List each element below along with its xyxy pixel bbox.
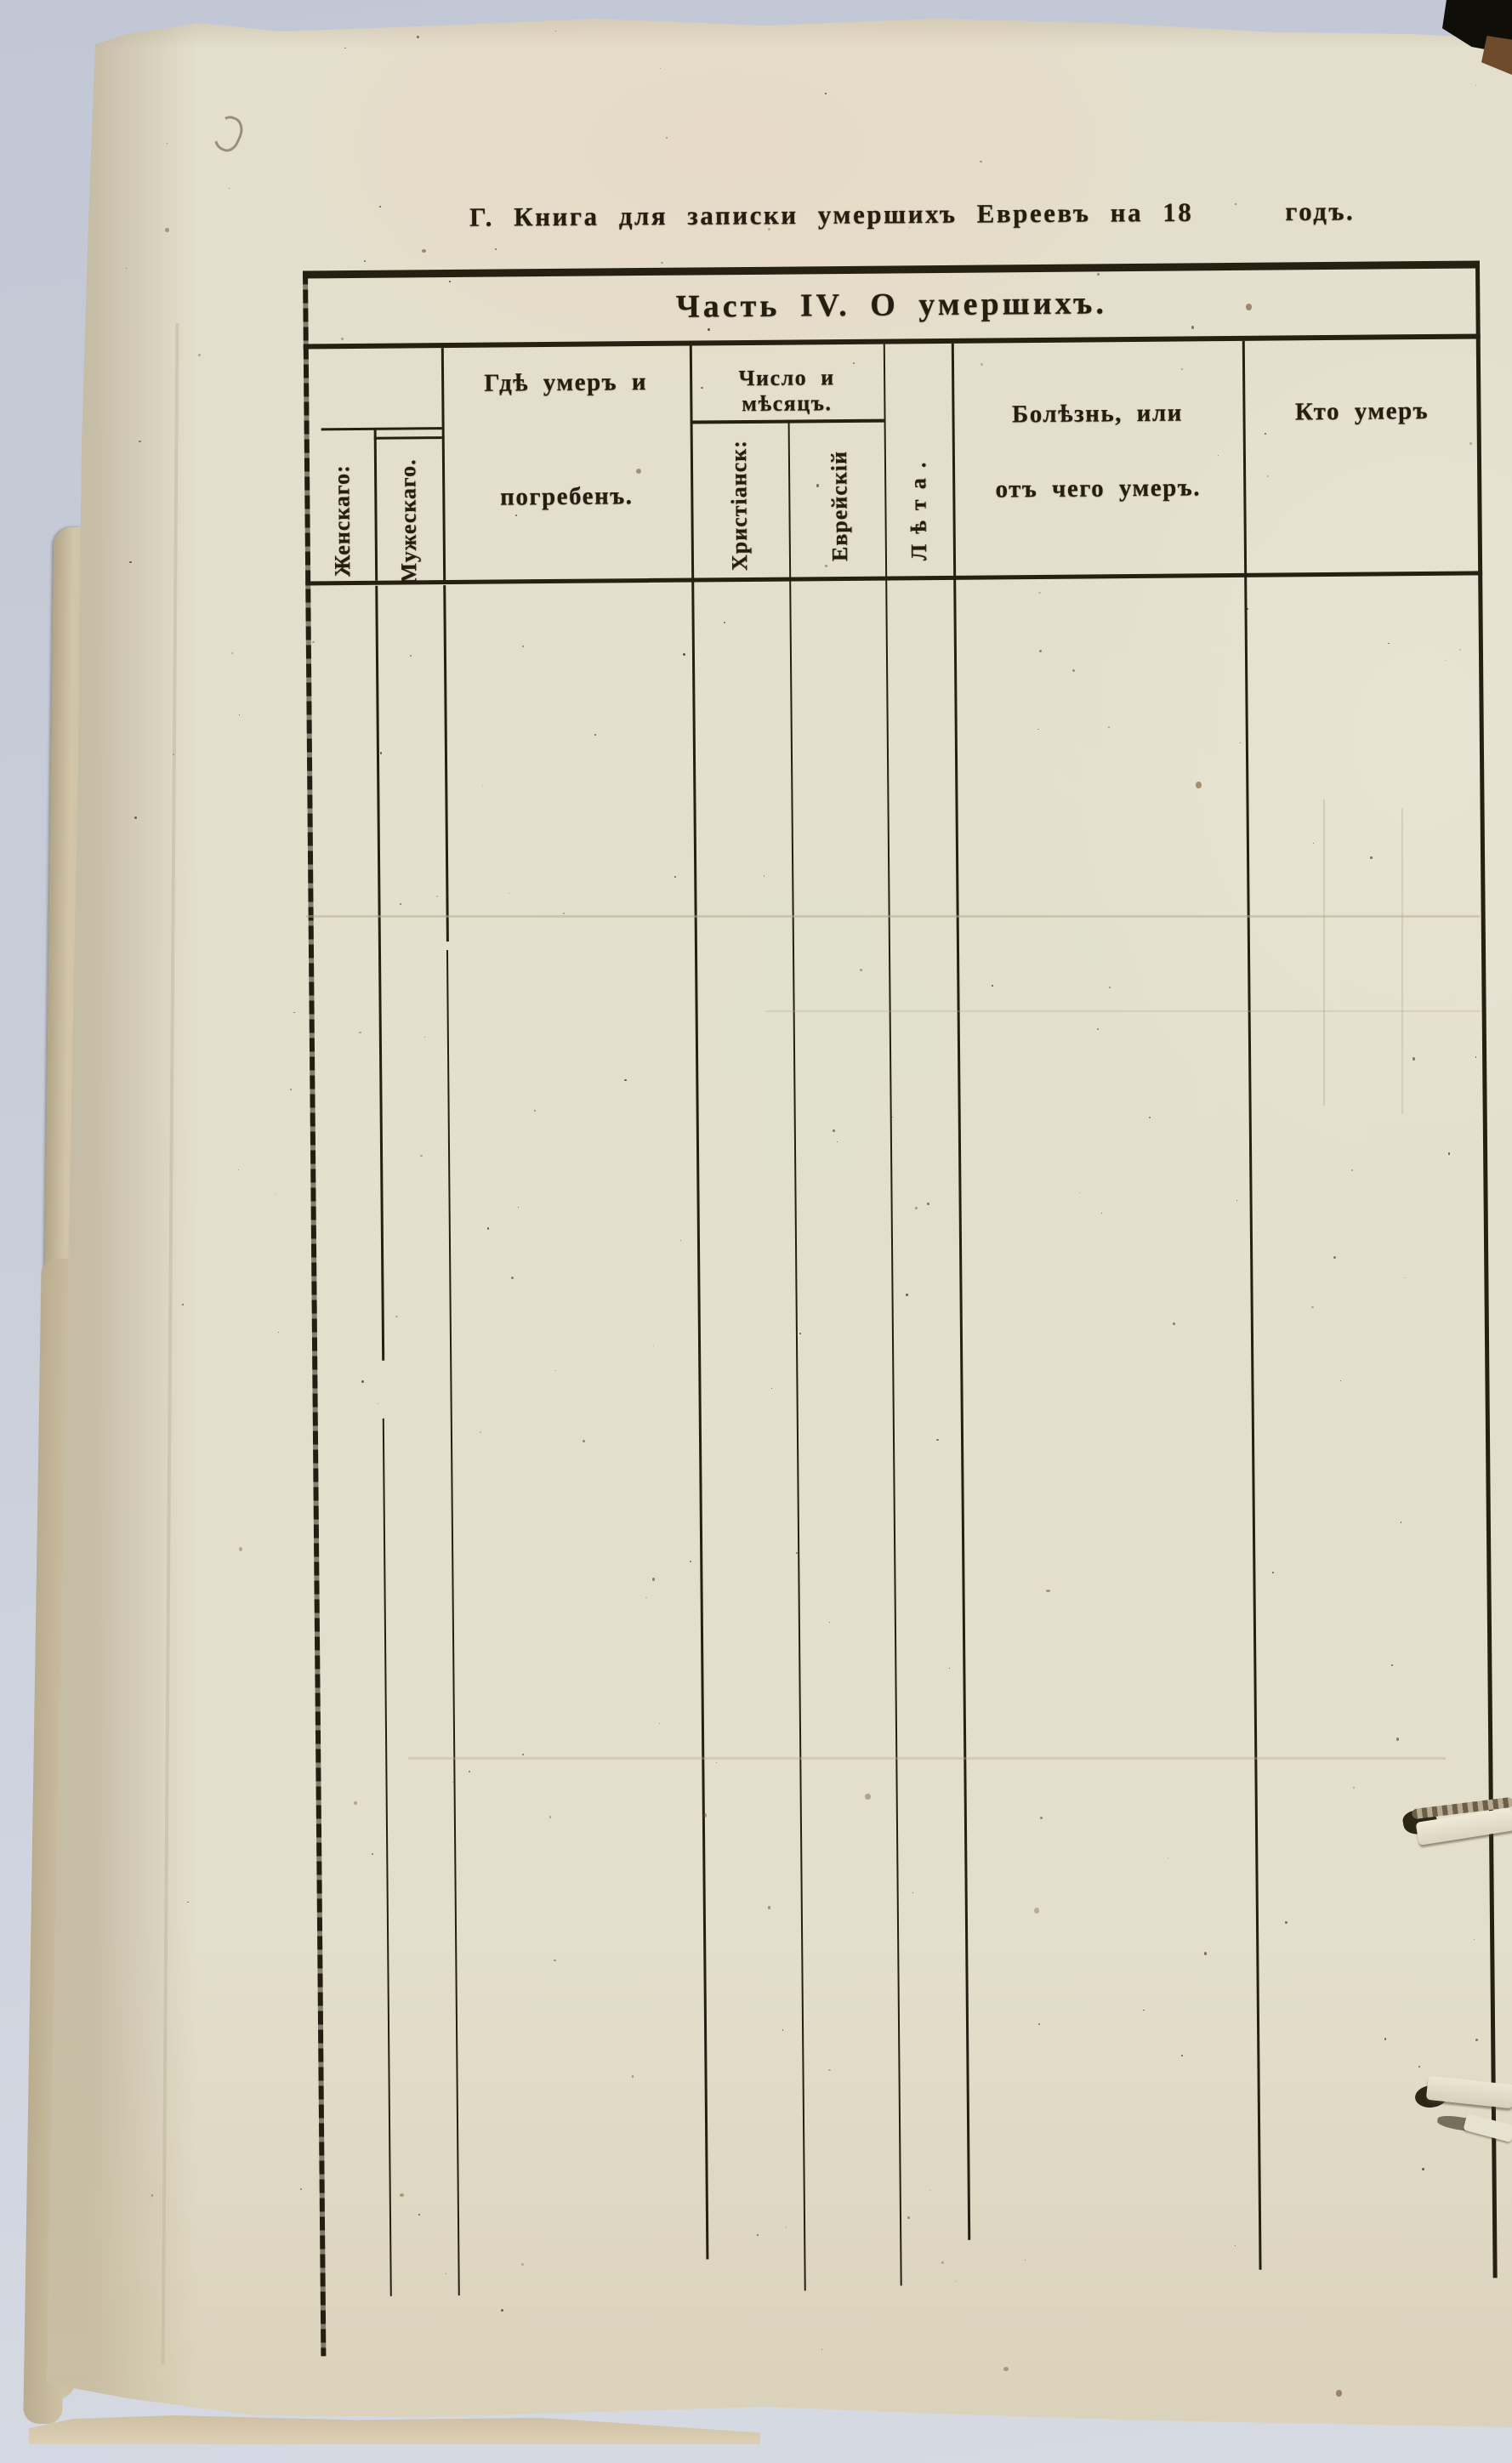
paper-speckle bbox=[1039, 650, 1042, 652]
paper-speckle bbox=[300, 2188, 302, 2190]
table-rule-horizontal bbox=[305, 571, 1482, 585]
paper-speckle bbox=[816, 484, 819, 487]
paper-speckle bbox=[949, 1668, 950, 1669]
paper-speckle bbox=[1097, 273, 1100, 276]
paper-speckle bbox=[1191, 326, 1194, 329]
paper-speckle bbox=[1173, 1323, 1175, 1325]
paper-speckle bbox=[956, 2281, 957, 2282]
paper-speckle bbox=[992, 985, 993, 987]
paper-speckle bbox=[198, 354, 201, 356]
paper-speckle bbox=[661, 262, 663, 264]
paper-crease bbox=[408, 1757, 1446, 1760]
paper-speckle bbox=[1469, 442, 1472, 445]
paper-speckle bbox=[768, 1906, 770, 1909]
paper-speckle bbox=[449, 281, 451, 282]
table-rule-vertical bbox=[374, 429, 378, 581]
column-header-female: Женскаго: bbox=[327, 441, 359, 600]
paper-speckle bbox=[1340, 1380, 1341, 1381]
paper-speckle bbox=[725, 341, 726, 343]
paper-speckle bbox=[1404, 1277, 1405, 1278]
paper-speckle bbox=[1236, 1200, 1237, 1201]
show-through-line bbox=[1323, 799, 1325, 1106]
paper-speckle bbox=[469, 1771, 470, 1772]
column-header-illness-line1: Болѣзнь, или bbox=[952, 399, 1242, 429]
paper-speckle bbox=[276, 1194, 276, 1195]
paper-speckle bbox=[690, 1561, 691, 1562]
paper-speckle bbox=[1196, 782, 1202, 788]
paper-speckle bbox=[501, 2309, 503, 2312]
paper-speckle bbox=[1265, 433, 1266, 435]
table-rule-vertical bbox=[443, 585, 449, 941]
table-rule-vertical bbox=[952, 344, 970, 2240]
paper-speckle bbox=[420, 1155, 423, 1157]
paper-speckle bbox=[126, 268, 127, 269]
paper-speckle bbox=[1475, 2039, 1478, 2041]
paper-speckle bbox=[583, 1440, 585, 1442]
paper-speckle bbox=[522, 1754, 524, 1755]
paper-speckle bbox=[912, 1892, 913, 1893]
paper-speckle bbox=[865, 1794, 871, 1800]
column-header-age: Лѣта. bbox=[903, 447, 935, 565]
paper-speckle bbox=[129, 561, 132, 563]
table-rule-vertical bbox=[884, 344, 902, 2286]
paper-speckle bbox=[278, 1332, 279, 1333]
death-register-table: Часть IV. О умершихъ. Женскаго: Мужескаг… bbox=[303, 260, 1498, 2380]
paper-speckle bbox=[1445, 660, 1446, 661]
paper-speckle bbox=[400, 903, 401, 905]
column-header-jewish-date: Еврейскій bbox=[824, 433, 855, 579]
paper-speckle bbox=[853, 362, 855, 364]
section-title: Часть IV. О умершихъ. bbox=[303, 281, 1480, 328]
column-header-where-died-line1: Гдѣ умеръ и bbox=[441, 368, 690, 399]
paper-speckle bbox=[495, 248, 497, 250]
paper-speckle bbox=[892, 1117, 893, 1118]
paper-speckle bbox=[1396, 1738, 1399, 1741]
year-blank-gap bbox=[1193, 220, 1285, 221]
paper-speckle bbox=[1143, 2010, 1145, 2011]
paper-speckle bbox=[701, 387, 703, 389]
paper-speckle bbox=[828, 2069, 831, 2071]
paper-speckle bbox=[1101, 1213, 1102, 1214]
paper-speckle bbox=[680, 1240, 681, 1241]
paper-speckle bbox=[674, 876, 676, 878]
paper-speckle bbox=[1422, 2168, 1424, 2170]
paper-speckle bbox=[1246, 304, 1252, 310]
paper-speckle bbox=[1285, 1921, 1287, 1924]
table-rule-vertical bbox=[446, 950, 460, 2295]
paper-speckle bbox=[422, 249, 426, 253]
paper-speckle bbox=[786, 2227, 787, 2228]
paper-speckle bbox=[354, 1801, 357, 1805]
column-header-christian-date: Христіанск: bbox=[724, 430, 756, 580]
underlying-page-edge-bottom bbox=[29, 2415, 760, 2444]
paper-crease bbox=[306, 915, 1480, 918]
paper-speckle bbox=[941, 2261, 944, 2264]
column-header-where-died-line2: погребенъ. bbox=[442, 482, 691, 513]
paper-speckle bbox=[1038, 592, 1041, 594]
paper-speckle bbox=[509, 893, 509, 894]
page-title-left: Г. Книга для записки умершихъ Евреевъ на… bbox=[469, 197, 1194, 233]
table-rule-horizontal bbox=[321, 427, 442, 430]
paper-speckle bbox=[1351, 1169, 1353, 1171]
paper-speckle bbox=[378, 1403, 378, 1404]
paper-speckle bbox=[796, 1552, 798, 1554]
paper-speckle bbox=[683, 653, 685, 656]
paper-speckle bbox=[771, 1388, 772, 1389]
paper-speckle bbox=[1240, 742, 1241, 743]
paper-speckle bbox=[380, 752, 382, 754]
paper-speckle bbox=[653, 1345, 654, 1346]
column-header-who-died: Кто умеръ bbox=[1242, 396, 1481, 426]
paper-speckle bbox=[825, 565, 827, 567]
paper-speckle bbox=[1384, 2038, 1386, 2040]
paper-speckle bbox=[768, 228, 770, 230]
paper-speckle bbox=[907, 2216, 910, 2219]
scan-stage: Г. Книга для записки умершихъ Евреевъ на… bbox=[0, 0, 1512, 2463]
ledger-page: Г. Книга для записки умершихъ Евреевъ на… bbox=[0, 0, 1512, 2463]
paper-speckle bbox=[1448, 1152, 1450, 1155]
table-rule-vertical bbox=[788, 420, 806, 2291]
paper-speckle bbox=[757, 2234, 759, 2236]
paper-speckle bbox=[1181, 368, 1183, 370]
paper-speckle bbox=[1370, 856, 1373, 859]
paper-speckle bbox=[238, 1169, 239, 1170]
paper-speckle bbox=[1413, 1057, 1415, 1061]
paper-speckle bbox=[139, 441, 141, 442]
table-rule-vertical bbox=[690, 346, 709, 2260]
column-header-male: Мужескаго. bbox=[393, 441, 425, 600]
paper-speckle bbox=[231, 652, 233, 654]
paper-crease bbox=[765, 1010, 1480, 1012]
paper-speckle bbox=[372, 1853, 373, 1855]
paper-speckle bbox=[833, 1129, 835, 1132]
paper-speckle bbox=[563, 913, 565, 914]
column-header-date-group: Число и мѣсяцъ. bbox=[690, 365, 884, 418]
page-title: Г. Книга для записки умершихъ Евреевъ на… bbox=[469, 196, 1355, 232]
show-through-line bbox=[1401, 808, 1403, 1114]
paper-speckle bbox=[554, 1960, 556, 1961]
paper-speckle bbox=[134, 816, 137, 819]
paper-speckle bbox=[379, 206, 381, 208]
table-rule-vertical bbox=[1242, 341, 1262, 2270]
table-rule-horizontal bbox=[374, 436, 442, 440]
paper-speckle bbox=[825, 93, 827, 94]
paper-speckle bbox=[929, 2190, 930, 2191]
paper-speckle bbox=[165, 228, 169, 232]
paper-speckle bbox=[1072, 669, 1075, 672]
paper-speckle bbox=[652, 1578, 655, 1581]
paper-speckle bbox=[341, 338, 344, 340]
paper-speckle bbox=[522, 646, 524, 647]
column-header-illness-line2: отъ чего умеръ. bbox=[952, 474, 1243, 504]
table-rule-vertical bbox=[375, 586, 384, 1361]
paper-speckle bbox=[424, 1037, 425, 1038]
paper-speckle bbox=[239, 1547, 242, 1551]
paper-speckle bbox=[1003, 2367, 1009, 2371]
paper-speckle bbox=[860, 969, 862, 971]
paper-speckle bbox=[1149, 1117, 1151, 1118]
paper-speckle bbox=[515, 515, 517, 516]
paper-speckle bbox=[555, 1370, 556, 1371]
paper-speckle bbox=[182, 1304, 184, 1305]
paper-speckle bbox=[1034, 1908, 1039, 1914]
table-rule-vertical bbox=[383, 1419, 392, 2296]
paper-speckle bbox=[1204, 1952, 1207, 1955]
page-title-right: годъ. bbox=[1285, 196, 1355, 227]
paper-speckle bbox=[1168, 1857, 1168, 1858]
paper-speckle bbox=[511, 1277, 514, 1279]
paper-speckle bbox=[151, 2194, 153, 2197]
paper-speckle bbox=[980, 161, 982, 162]
paper-speckle bbox=[1388, 643, 1390, 644]
paper-speckle bbox=[1336, 2390, 1342, 2397]
paper-speckle bbox=[400, 2193, 404, 2197]
paper-speckle bbox=[708, 328, 710, 331]
paper-speckle bbox=[906, 1294, 908, 1296]
table-rule-horizontal bbox=[304, 333, 1481, 349]
paper-speckle bbox=[410, 655, 412, 657]
paper-speckle bbox=[1418, 2066, 1420, 2068]
paper-speckle bbox=[417, 36, 419, 38]
paper-speckle bbox=[660, 68, 661, 69]
paper-speckle bbox=[1038, 2023, 1040, 2025]
